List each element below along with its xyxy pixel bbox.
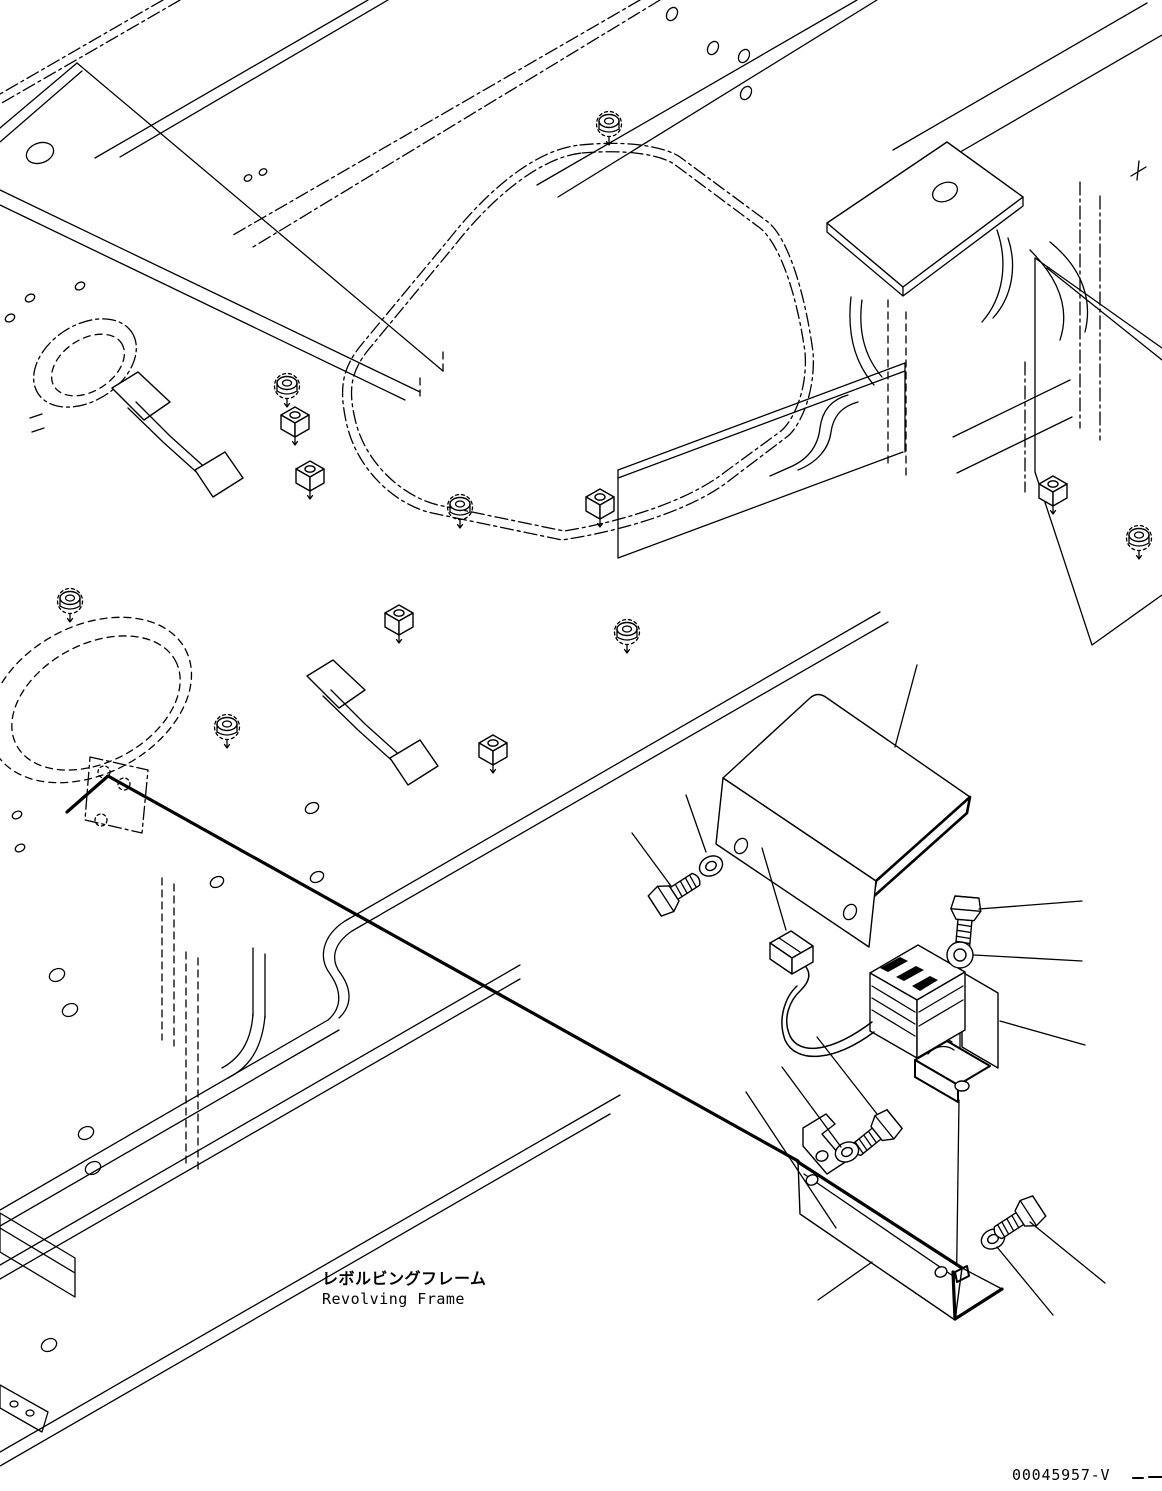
leader-line-cover-bolt [632, 833, 671, 886]
location-leader-line [67, 776, 798, 1161]
horn-washer [947, 942, 973, 968]
drawing-number: 00045957-V [1012, 1466, 1110, 1484]
mount-location-marker [85, 757, 148, 833]
hex-nut-icon [597, 112, 622, 146]
hex-nut-icon [615, 620, 640, 654]
leader-line-horn-washer [974, 955, 1082, 961]
hex-nut-icon [58, 589, 83, 623]
cube-nut-icon [1039, 476, 1067, 514]
wire-harness [782, 967, 874, 1056]
hex-nut-icon [275, 374, 300, 408]
cube-nut-icon [479, 735, 507, 773]
revolving-frame-diagram: レボルビングフレーム Revolving Frame 00045957-V [0, 0, 1162, 1491]
leader-line-plate [818, 1262, 872, 1300]
cube-nut-icon [586, 489, 614, 527]
leader-line-cover-washer [686, 795, 706, 852]
leader-line-plate-bolt [1030, 1222, 1105, 1283]
central-opening [343, 143, 814, 540]
leader-line-cover [895, 665, 917, 747]
mounting-plate [798, 1162, 1002, 1320]
frame-beams-top-center [233, 0, 877, 247]
cube-nut-icon [296, 461, 324, 499]
labels: レボルビングフレーム Revolving Frame 00045957-V [322, 1269, 1162, 1484]
cube-nut-icon [281, 407, 309, 445]
hex-nut-icon [448, 495, 473, 529]
frame-label-en: Revolving Frame [322, 1290, 465, 1308]
frame-wall-center [618, 362, 1072, 558]
travel-pedal-lower [307, 660, 438, 785]
leader-line-plate-washer [997, 1247, 1053, 1315]
frame-wall-top-right [893, 3, 1162, 645]
swing-circle-opening [0, 584, 220, 816]
frame-label-jp: レボルビングフレーム [322, 1269, 487, 1288]
exploded-parts [647, 695, 1048, 1321]
parts-diagram-page: レボルビングフレーム Revolving Frame 00045957-V [0, 0, 1162, 1491]
leader-line-horn-bracket [1000, 1021, 1085, 1045]
frame-deck-edges [0, 612, 888, 1466]
center-pillar-bracket [827, 142, 1088, 478]
cover-part [716, 695, 970, 948]
cover-bolt [647, 865, 707, 918]
hex-nut-icon [215, 715, 240, 749]
cover-washer [696, 852, 726, 880]
hex-nut-icon [1127, 526, 1152, 560]
travel-pedal-upper [112, 372, 243, 497]
horn-bolt [947, 896, 981, 950]
leader-line-horn-bolt [979, 901, 1082, 909]
cube-nut-icon [385, 605, 413, 643]
sheet-corner-mark [1133, 1477, 1162, 1478]
